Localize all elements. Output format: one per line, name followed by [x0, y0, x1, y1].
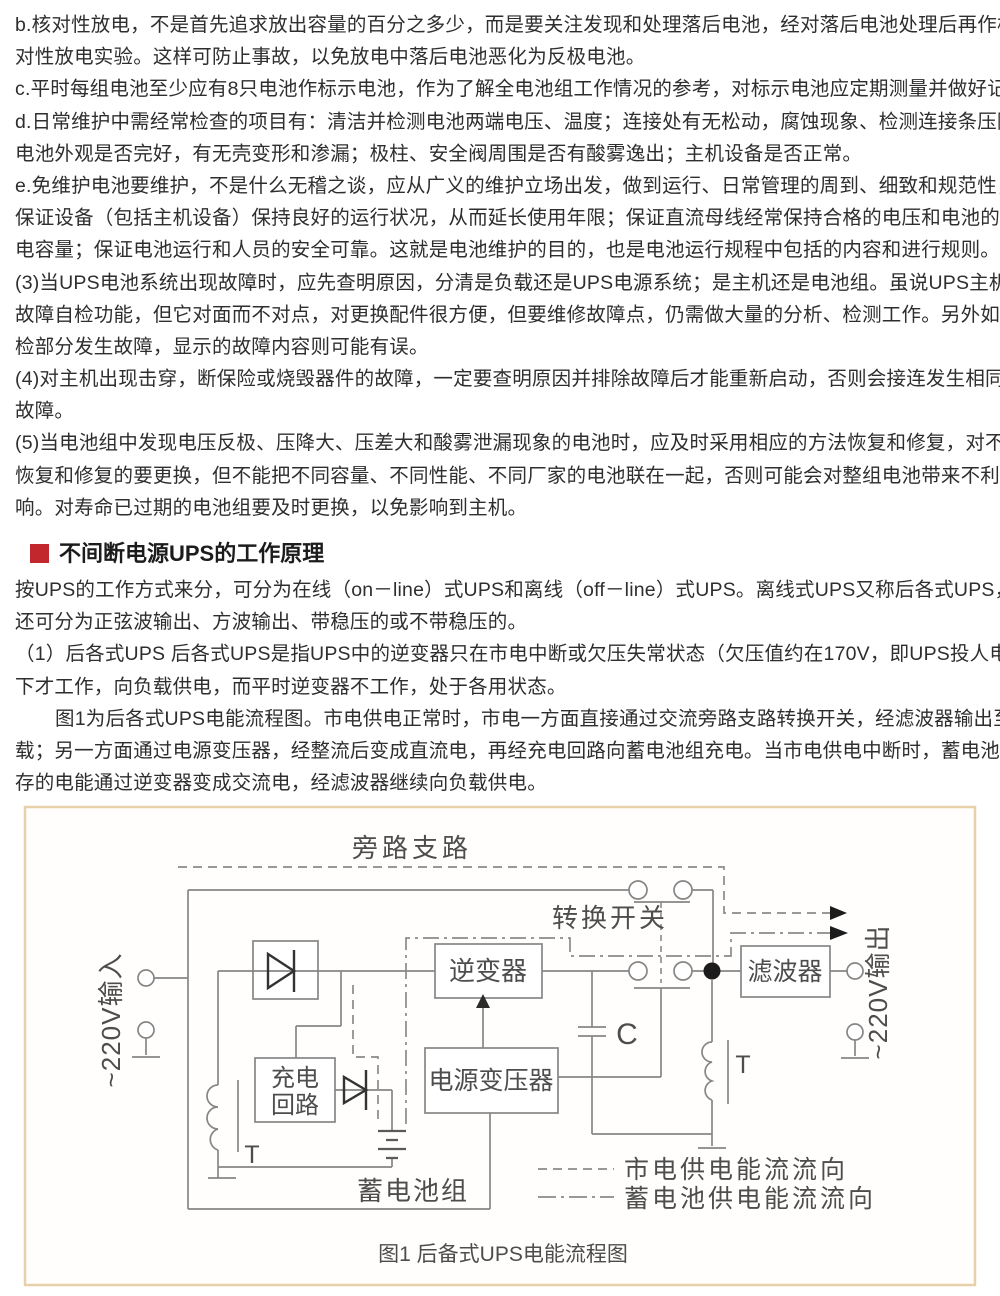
- legend-battery-label: 蓄电池供电能流流向: [624, 1185, 876, 1213]
- switch-contact-bottom-right: [674, 962, 692, 980]
- input-voltage-label: ~220V输入: [96, 953, 126, 1088]
- charge-circuit-label-line1: 充电: [271, 1065, 319, 1092]
- output-terminal-top: [847, 963, 863, 979]
- t-left-label: T: [244, 1141, 259, 1169]
- transformer-label: 电源变压器: [428, 1067, 553, 1095]
- figure-frame: [25, 807, 975, 1285]
- figure-diagram: 逆变器 电源变压器 充电 回路 滤波器 旁路支路 转换开关 C T T 蓄电池组…: [0, 0, 1000, 1296]
- output-voltage-label: ~220V输出: [863, 925, 893, 1060]
- bypass-label: 旁路支路: [352, 833, 472, 863]
- input-terminal-top: [138, 970, 154, 986]
- t-right-label: T: [735, 1051, 750, 1079]
- output-terminal-bottom: [847, 1024, 863, 1040]
- junction-dot: [704, 963, 721, 980]
- input-terminal-bottom: [138, 1022, 154, 1038]
- battery-group-label: 蓄电池组: [357, 1176, 469, 1206]
- switch-contact-bottom-left: [629, 962, 647, 980]
- capacitor-label: C: [616, 1018, 638, 1051]
- switch-contact-top-left: [629, 881, 647, 899]
- figure-caption: 图1 后备式UPS电能流程图: [378, 1243, 628, 1266]
- transfer-switch-label: 转换开关: [552, 903, 668, 933]
- rectifier-box: [253, 941, 318, 999]
- charge-circuit-label-line2: 回路: [271, 1092, 319, 1119]
- filter-label: 滤波器: [747, 958, 822, 986]
- inverter-label: 逆变器: [449, 956, 527, 986]
- switch-contact-top-right: [674, 881, 692, 899]
- legend-mains-label: 市电供电能流流向: [624, 1156, 848, 1184]
